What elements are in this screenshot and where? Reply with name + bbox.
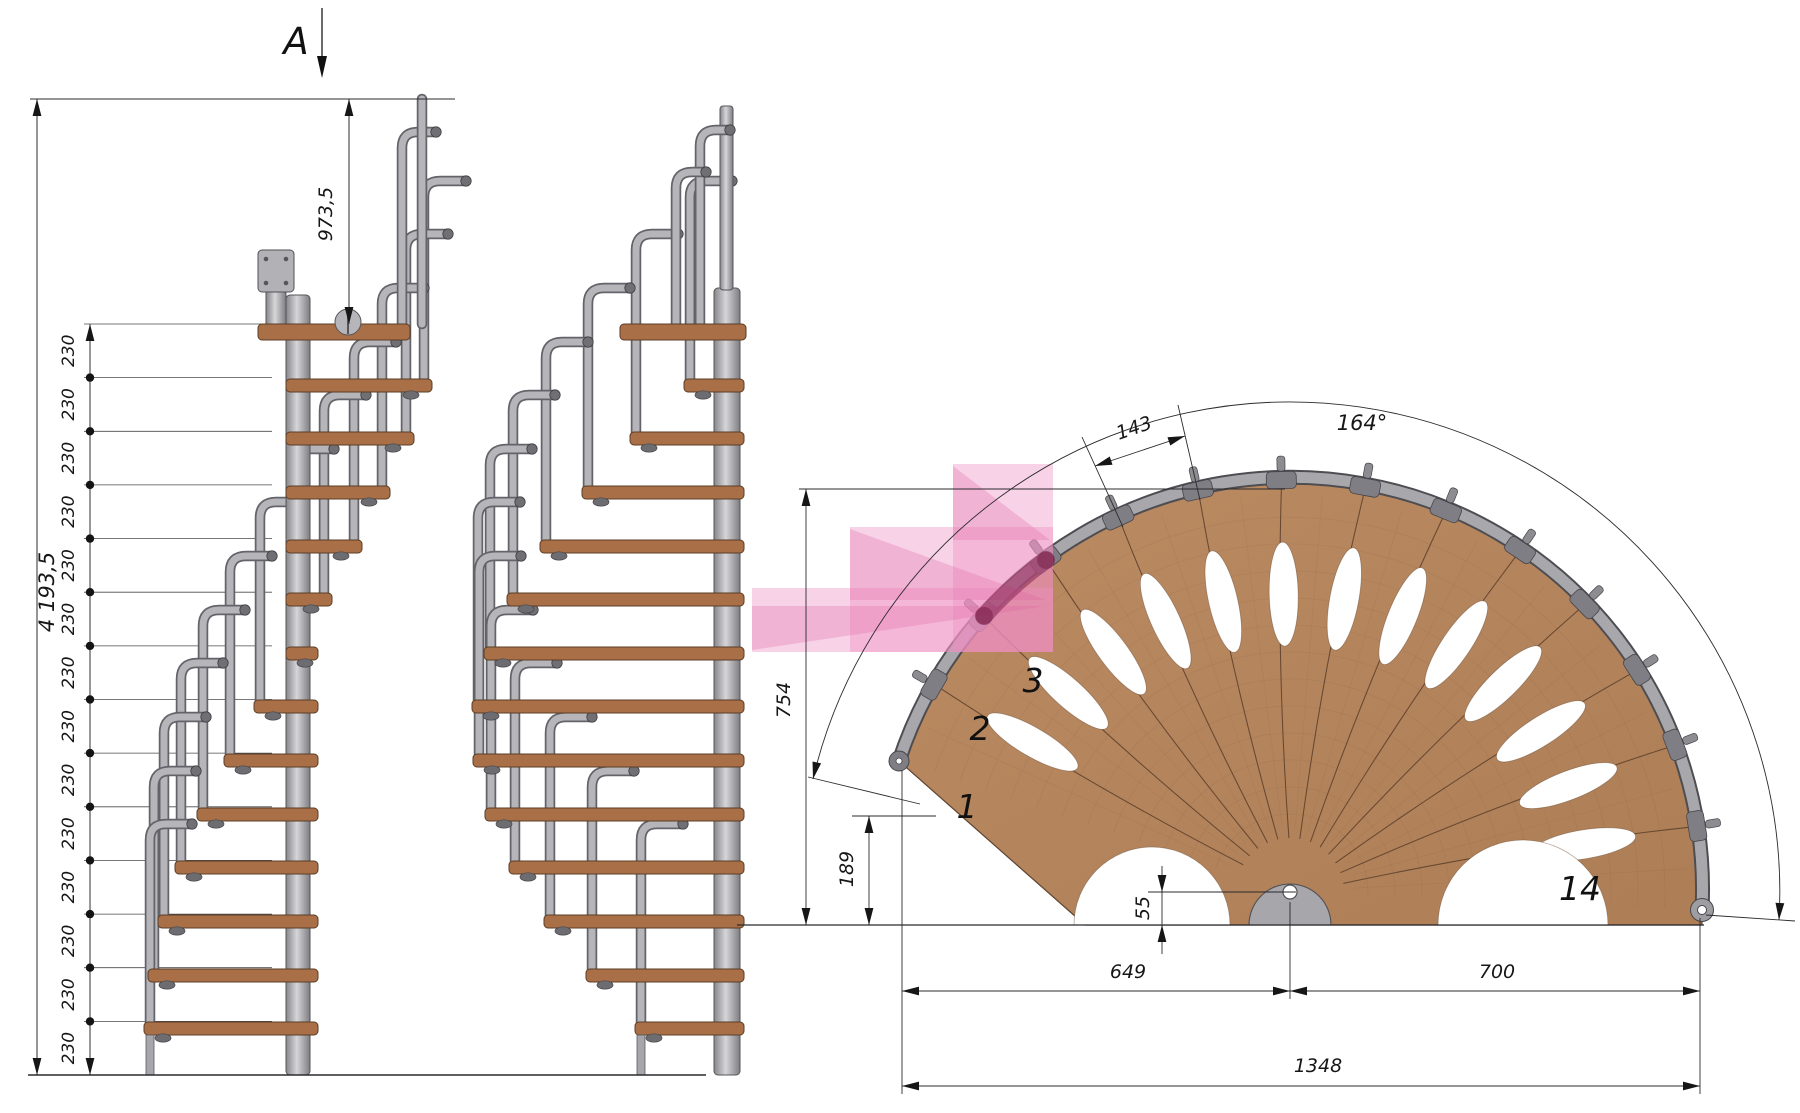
riser-dim-label: 230 [59, 925, 79, 957]
support-leg [637, 1035, 645, 1075]
tread-clamp [159, 981, 175, 989]
rail-connector [625, 283, 635, 293]
ext-ray-angle-left [808, 777, 920, 804]
dim-arrowhead [1158, 925, 1167, 942]
rim-end-hole [1698, 906, 1707, 915]
rim-baluster-stud [1105, 494, 1119, 511]
center-pole [714, 288, 740, 1075]
dim-arrowhead [1683, 987, 1700, 996]
platform-tread [258, 324, 410, 340]
rail-connector [583, 337, 593, 347]
rim-connector [1266, 456, 1297, 489]
tread-clamp [483, 712, 499, 720]
tread [286, 647, 318, 660]
rail-connector [515, 497, 525, 507]
riser-dim-label: 230 [59, 388, 79, 420]
rim-baluster-stud [1682, 733, 1699, 746]
rim-baluster-stud [1642, 653, 1659, 668]
riser-dim-label: 230 [59, 764, 79, 796]
tread-clamp [169, 927, 185, 935]
tread [286, 486, 390, 499]
tread [540, 540, 744, 553]
tread [509, 861, 744, 874]
rail-connector [431, 127, 441, 137]
baluster-outline [546, 342, 586, 546]
rail-connector [516, 551, 526, 561]
dim-arrowhead [902, 1082, 919, 1091]
rail-connector [443, 229, 453, 239]
tread [630, 432, 744, 445]
riser-chain-dot [86, 1017, 94, 1025]
platform-height-label: 973,5 [315, 187, 337, 241]
dim-arrowhead [33, 99, 42, 116]
tread [485, 808, 744, 821]
span-total-label: 1348 [1294, 1055, 1342, 1077]
bracket-screw [284, 281, 289, 286]
sweep-angle-label: 164° [1337, 411, 1388, 435]
support-leg [146, 1035, 154, 1075]
hub-offset-label: 55 [1132, 896, 1154, 920]
tread [224, 754, 318, 767]
staircase-technical-drawing: 2302302302302302302302302302302302302302… [0, 0, 1800, 1113]
rail-connector [218, 658, 228, 668]
tread-clamp [361, 498, 377, 506]
section-profile-highlight [752, 464, 1055, 652]
tread [473, 754, 744, 767]
rail-connector [191, 766, 201, 776]
tread-clamp [551, 552, 567, 560]
tread-arc-width-label: 143 [1113, 412, 1154, 445]
tread [148, 969, 318, 982]
riser-chain-dot [86, 964, 94, 972]
dim-arrowhead [1775, 903, 1785, 920]
riser-chain-dot [86, 534, 94, 542]
dim-arrowhead [86, 1058, 95, 1075]
riser-chain-dot [86, 373, 94, 381]
riser-dim-label: 230 [59, 495, 79, 527]
tread-clamp [265, 712, 281, 720]
tread [158, 915, 318, 928]
riser-chain-dot [86, 695, 94, 703]
baluster-outline [588, 288, 628, 492]
tread-clamp [403, 391, 419, 399]
riser-dim-label: 230 [59, 710, 79, 742]
riser-dim-label: 230 [59, 603, 79, 635]
tread [586, 969, 744, 982]
elevation-view-side [472, 106, 746, 1075]
bracket-screw [264, 281, 269, 286]
tread-clamp [155, 1034, 171, 1042]
tread [197, 808, 318, 821]
tread-clamp [496, 820, 512, 828]
tread-clamp [597, 981, 613, 989]
rim-connector [1686, 807, 1723, 842]
tread [544, 915, 744, 928]
riser-chain-dot [86, 588, 94, 596]
tread-clamp [235, 766, 251, 774]
step-number-14: 14 [1559, 869, 1601, 908]
radius-height-label: 754 [773, 682, 795, 718]
tread-clamp [208, 820, 224, 828]
wall-bracket [258, 250, 294, 292]
rail-connector [527, 444, 537, 454]
rim-baluster-stud [1705, 818, 1721, 828]
tread-clamp [333, 552, 349, 560]
baluster-tube [424, 181, 464, 385]
baluster-outline [424, 181, 464, 385]
rim-baluster-stud [1445, 487, 1458, 504]
riser-chain-dot [86, 427, 94, 435]
dim-arrowhead [802, 908, 811, 925]
dim-arrowhead [1273, 987, 1290, 996]
rail-connector [201, 712, 211, 722]
step-number-2: 2 [970, 709, 991, 748]
ext-line-143-b [1082, 437, 1123, 527]
highlight-connector-a [1037, 551, 1055, 569]
tread-clamp [186, 873, 202, 881]
rail-connector [550, 390, 560, 400]
baluster-outline [203, 610, 243, 814]
dim-arrowhead [1167, 432, 1186, 446]
rail-connector [187, 819, 197, 829]
step-number-3: 3 [1023, 661, 1044, 700]
platform-tread [620, 324, 746, 340]
riser-dim-label: 230 [59, 549, 79, 581]
tread-clamp [385, 444, 401, 452]
tread-clamp [518, 605, 534, 613]
dim-arrowhead [345, 99, 354, 116]
tread-clamp [646, 1034, 662, 1042]
tread [286, 540, 362, 553]
elevation-riser-chain: 2302302302302302302302302302302302302302… [59, 324, 272, 1075]
rim-baluster-stud [1522, 528, 1537, 545]
bracket-screw [264, 257, 269, 262]
tread [254, 700, 318, 713]
tread-clamp [484, 766, 500, 774]
tread [507, 593, 744, 606]
riser-dim-label: 230 [59, 1032, 79, 1064]
tread [472, 700, 744, 713]
riser-chain-dot [86, 910, 94, 918]
riser-dim-label: 230 [59, 817, 79, 849]
drawing-sheet: 2302302302302302302302302302302302302302… [0, 0, 1800, 1113]
step-number-1: 1 [957, 787, 978, 826]
total-height-label: 4 193,5 [35, 552, 59, 632]
riser-chain-dot [86, 642, 94, 650]
tread-clamp [641, 444, 657, 452]
section-marker-label: A [281, 20, 308, 63]
highlight-connector-b [975, 607, 993, 625]
elevation-view-front [144, 99, 471, 1075]
tread [175, 861, 318, 874]
tread-clamp [555, 927, 571, 935]
riser-chain-dot [86, 803, 94, 811]
tread [582, 486, 744, 499]
rail-connector [240, 605, 250, 615]
rim-baluster-stud [1363, 463, 1374, 479]
baluster-tube [546, 342, 586, 546]
riser-dim-label: 230 [59, 335, 79, 367]
rail-connector [461, 176, 471, 186]
tread [144, 1022, 318, 1035]
riser-chain-dot [86, 481, 94, 489]
rim-baluster-stud [911, 669, 928, 683]
dim-arrowhead [802, 489, 811, 506]
span-left-label: 649 [1110, 961, 1146, 983]
riser-dim-label: 230 [59, 871, 79, 903]
rail-connector [701, 167, 711, 177]
riser-dim-label: 230 [59, 978, 79, 1010]
tread [684, 379, 744, 392]
tread-clamp [495, 659, 511, 667]
rim-baluster-stud [1277, 456, 1285, 471]
ext-ray-angle-right [1706, 915, 1795, 921]
dim-arrowhead [33, 1058, 42, 1075]
tread-clamp [520, 873, 536, 881]
riser-chain-dot [86, 749, 94, 757]
dim-arrowhead [865, 816, 874, 833]
rail-connector [267, 551, 277, 561]
tread [286, 432, 414, 445]
tread [635, 1022, 744, 1035]
dim-arrowhead [902, 987, 919, 996]
dim-arrowhead [865, 908, 874, 925]
rim-start-hole [896, 758, 902, 764]
tread-clamp [695, 391, 711, 399]
entry-offset-label: 189 [836, 851, 858, 887]
tread-clamp [297, 659, 313, 667]
center-pole [286, 295, 310, 1075]
baluster-tube [588, 288, 628, 492]
dim-arrowhead [86, 324, 95, 341]
riser-chain-dot [86, 856, 94, 864]
span-right-label: 700 [1479, 961, 1515, 983]
dim-arrowhead [1683, 1082, 1700, 1091]
riser-dim-label: 230 [59, 656, 79, 688]
tread [286, 379, 432, 392]
tread [286, 593, 332, 606]
bracket-screw [284, 257, 289, 262]
riser-dim-label: 230 [59, 442, 79, 474]
rail-connector [725, 125, 735, 135]
tread-clamp [303, 605, 319, 613]
dim-arrowhead [1290, 987, 1307, 996]
tread-clamp [593, 498, 609, 506]
baluster-tube [203, 610, 243, 814]
rim-connector-body [1266, 471, 1296, 489]
tread [484, 647, 744, 660]
section-arrow-head [317, 56, 327, 78]
